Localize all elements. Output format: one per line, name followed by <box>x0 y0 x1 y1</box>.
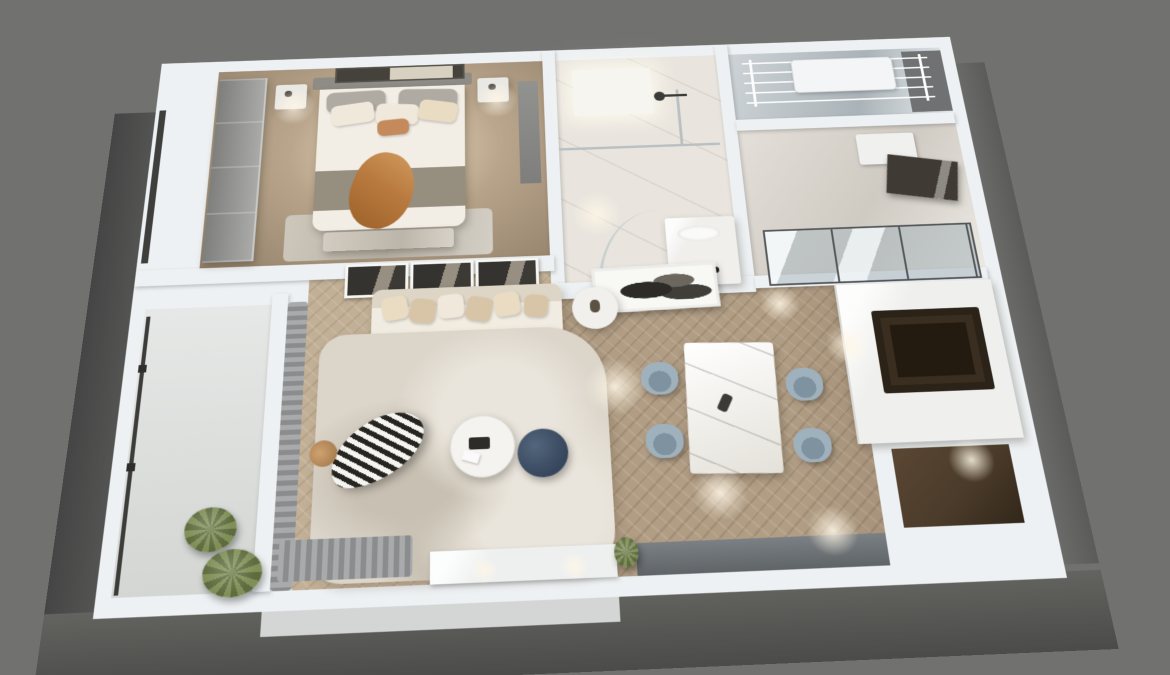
railing-post-2 <box>126 463 136 472</box>
bed-pillow-rust <box>377 118 410 137</box>
sofa-pillow-3 <box>437 293 465 319</box>
coffee-table-books <box>469 437 490 450</box>
sofa-pillow-6 <box>523 294 548 317</box>
dining-chair-1 <box>640 361 679 395</box>
living-curtain-bottom <box>277 535 413 582</box>
apartment-floorplan <box>89 37 1073 649</box>
nightstand-left <box>274 84 307 110</box>
sofa-pillow-2 <box>408 298 438 324</box>
sofa-pillow-4 <box>464 295 495 322</box>
sofa-pillow-5 <box>492 290 522 317</box>
bed-pillow-white-3 <box>417 99 460 123</box>
railing-post-1 <box>138 365 147 373</box>
bedroom-side-panel <box>518 81 542 184</box>
utility-wall-unit <box>790 57 897 93</box>
render-viewport <box>0 0 1170 675</box>
dining-chair-2 <box>645 423 685 459</box>
entrance-foyer-floor <box>891 444 1024 528</box>
bathroom-ceiling-light <box>572 68 654 116</box>
cooktop-inner <box>889 322 975 377</box>
sliding-glass-doors <box>763 222 983 285</box>
marble-dining-table <box>684 342 784 474</box>
nightstand-right <box>477 77 509 102</box>
side-table-decor <box>590 300 601 313</box>
dark-vanity-desk <box>886 154 957 201</box>
